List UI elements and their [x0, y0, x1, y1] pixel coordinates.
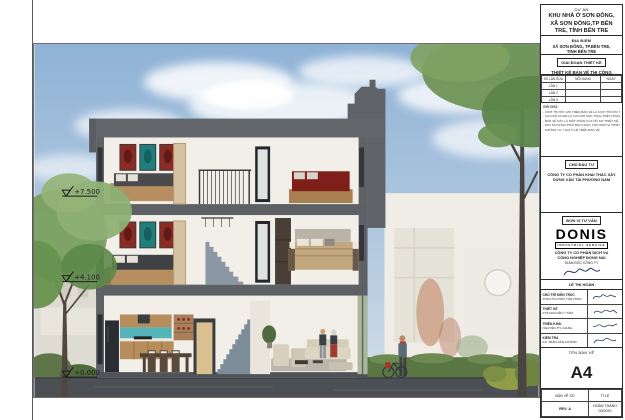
revision-row: LẦN 2: [542, 90, 622, 97]
consultant-label: ĐƠN VỊ TƯ VẤN: [562, 216, 601, 225]
section-rendering-svg: +7.500 +4.100 +0.000: [34, 44, 539, 397]
background-buildings-right: [384, 193, 538, 377]
f3-artworks: [120, 144, 176, 170]
completion-date: HOÀN THÀNH 09/2020: [589, 402, 622, 417]
tb-investor: CHỦ ĐẦU TƯ CÔNG TY CỔ PHẦN KHAI THÁC XÂY…: [541, 157, 622, 213]
slab-f2: [96, 285, 367, 296]
rev-value: REV: A: [542, 402, 589, 417]
f2-artworks: [120, 222, 176, 248]
phase-name: THIẾT KẾ BẢN VẼ THI CÔNG: [543, 70, 620, 75]
role-person: KTS.NGUYỄN Ý TÂM: [543, 311, 586, 315]
role-person: THS.KTS CHÂU TẤN THẢO: [543, 297, 586, 301]
project-name: KHU NHÀ Ở SƠN ĐÔNG, XÃ SƠN ĐÔNG,TP BẾN T…: [543, 13, 620, 36]
f3-tall-window: [255, 146, 270, 202]
rev-header-content: NỘI DUNG: [565, 76, 601, 83]
role-row: CHỦ TRÌ KIẾN TRÚC THS.KTS CHÂU TẤN THẢO: [541, 290, 622, 305]
tb-location: ĐỊA ĐIỂM XÃ SƠN ĐÔNG, TP.BẾN TRE, TỈNH B…: [541, 36, 622, 55]
investor-label: CHỦ ĐẦU TƯ: [565, 160, 598, 169]
role-row: KIỂM TRA KS. TRẦN VĂN CƯỜNG: [541, 334, 622, 348]
cooktop: [134, 336, 152, 339]
donis-logo: DONIS: [543, 227, 620, 241]
drawing-name-label: TÊN BẢN VẼ: [543, 350, 620, 355]
director-name: LÊ THỊ HOÀN: [541, 279, 622, 287]
f3-left-window: [98, 147, 103, 183]
section-rendering: +7.500 +4.100 +0.000: [33, 43, 540, 398]
ottoman: [329, 362, 353, 370]
tb-footer: BẢN VẼ SỐ TỈ LỆ REV: A HOÀN THÀNH 09/202…: [541, 389, 622, 417]
tb-drawing-name: TÊN BẢN VẼ A4: [541, 348, 622, 389]
tb-project: DỰ ÁN KHU NHÀ Ở SƠN ĐÔNG, XÃ SƠN ĐÔNG,TP…: [541, 5, 622, 36]
range-hood: [138, 314, 150, 323]
sofa: [305, 347, 351, 359]
armchair: [291, 348, 306, 367]
note-line: - KHÔNG TỰ Ý ĐO TỈ LỆ TRÊN BẢN VẼ.: [543, 128, 620, 132]
role-person: NGUYỄN TH. GIANG: [543, 326, 586, 330]
consultant-name: CÔNG TY CỔ PHẦN DỊCH VỤ CÔNG NGHIỆP ĐỒNG…: [543, 250, 620, 260]
signature: [592, 336, 618, 345]
tb-consultant: ĐƠN VỊ TƯ VẤN DONIS INDUSTRIAL SERVICE C…: [541, 213, 622, 290]
location-label: ĐỊA ĐIỂM: [543, 38, 620, 43]
elevation-label-7500: +7.500: [74, 188, 100, 196]
fridge: [105, 320, 119, 372]
rev-header-count: SỐ LẦN SỬA: [542, 76, 566, 83]
f3-right-bed: [289, 171, 353, 203]
tb-revisions: SỐ LẦN SỬA NỘI DUNG NGÀY LẦN 1 LẦN 2 LẦN…: [541, 75, 622, 103]
f2-door: [174, 221, 186, 285]
tb-phase: GIAI ĐOẠN THIẾT KẾ THIẾT KẾ BẢN VẼ THI C…: [541, 55, 622, 75]
person-woman-inside: [330, 329, 337, 357]
revision-row: LẦN 1: [542, 83, 622, 90]
round-window: [485, 270, 511, 296]
armchair: [273, 344, 289, 366]
tb-notes: GHI CHÚ: - KÍCH THƯỚC GHI TRÊN BẢN VẼ LÀ…: [541, 103, 622, 157]
elevation-label-0000: +0.000: [74, 369, 100, 377]
location-name: XÃ SƠN ĐÔNG, TP.BẾN TRE, TỈNH BẾN TRE: [543, 44, 620, 55]
rev-header-date: NGÀY: [601, 76, 622, 83]
f1-stair-door: [194, 318, 216, 374]
pedestrian-head: [399, 335, 405, 341]
f1-glass-wall: [358, 296, 368, 375]
scale-label: TỈ LỆ: [589, 390, 622, 402]
plant: [262, 325, 276, 343]
donis-tagline: INDUSTRIAL SERVICE: [555, 242, 609, 249]
role-row: TRIỂN KHAI NGUYỄN TH. GIANG: [541, 319, 622, 334]
right-facade-band: [368, 89, 386, 228]
revision-table: SỐ LẦN SỬA NỘI DUNG NGÀY LẦN 1 LẦN 2 LẦN…: [541, 75, 622, 103]
drawing-no-label: BẢN VẼ SỐ: [542, 390, 589, 402]
phase-label: GIAI ĐOẠN THIẾT KẾ: [557, 58, 605, 67]
f2-right-window: [359, 225, 364, 261]
sofa-back: [307, 339, 349, 347]
wine-shelf: [174, 314, 194, 340]
f3-door: [174, 143, 186, 204]
f2-tall-window: [255, 221, 270, 283]
investor-name: CÔNG TY CỔ PHẦN KHAI THÁC XÂY DỰNG VẬN T…: [543, 172, 620, 182]
side-table: [313, 360, 323, 363]
signature: [592, 307, 618, 316]
f3-right-window: [359, 147, 364, 187]
signature: [592, 321, 618, 330]
tb-roles: CHỦ TRÌ KIẾN TRÚC THS.KTS CHÂU TẤN THẢO …: [541, 290, 622, 348]
signature: [592, 292, 618, 301]
elevation-label-4100: +4.100: [74, 274, 100, 282]
f1-left-window: [98, 314, 103, 364]
director-signature: [562, 265, 602, 278]
bike-bag: [385, 362, 390, 368]
coffee-table: [295, 360, 308, 364]
f2-right-bed: [288, 229, 359, 271]
role-person: KS. TRẦN VĂN CƯỜNG: [543, 340, 586, 344]
slab-f3: [96, 204, 367, 215]
roof-slab: [89, 119, 384, 138]
footer-table: BẢN VẼ SỐ TỈ LỆ REV: A HOÀN THÀNH 09/202…: [541, 389, 622, 417]
title-block: DỰ ÁN KHU NHÀ Ở SƠN ĐÔNG, XÃ SƠN ĐÔNG,TP…: [540, 4, 623, 418]
drawing-sheet: +7.500 +4.100 +0.000 DỰ ÁN: [0, 0, 625, 420]
project-label: DỰ ÁN: [543, 7, 620, 12]
role-row: THIẾT KẾ KTS.NGUYỄN Ý TÂM: [541, 305, 622, 320]
building-section: [89, 80, 385, 377]
sheet-size: A4: [543, 363, 620, 383]
